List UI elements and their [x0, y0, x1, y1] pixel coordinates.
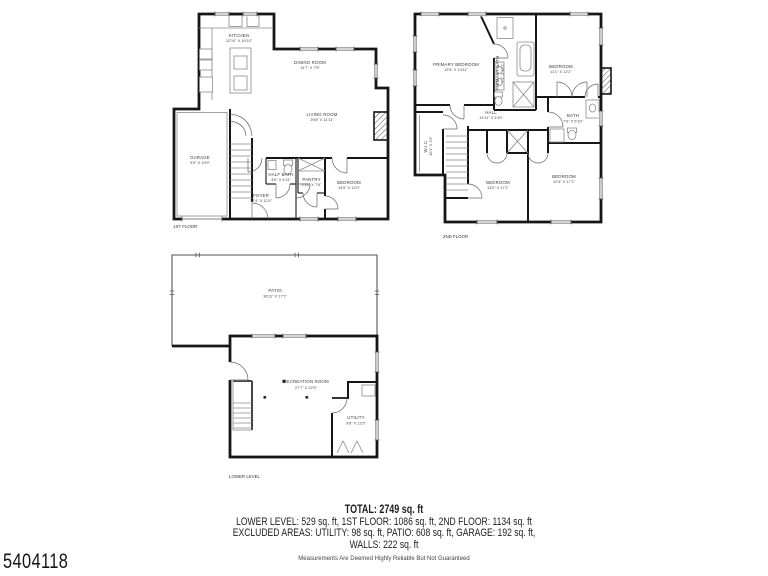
room-label-primary-bath-dims: 7'1" X 12'2" — [500, 62, 505, 82]
room-label-recreation-name: RECREATION ROOM — [283, 379, 329, 384]
room-label-patio-dims: 36'11" X 17'1" — [263, 294, 287, 299]
floor-plan-lower: PATIO 36'11" X 17'1" RECREATION ROOM 27'… — [158, 248, 408, 480]
floor-plan-second: PRIMARY BEDROOM 13'9" X 14'11" PRIMARY B… — [408, 6, 620, 246]
room-label-dining-dims: 14'7" X 7'5" — [300, 65, 320, 70]
room-label-recreation-dims: 27'7" X 22'0" — [295, 385, 318, 390]
room-label-bedroom1-dims: 14'6" X 12'0" — [338, 185, 361, 190]
room-label-wic-dims: 10'4" X 3'4" — [428, 135, 433, 155]
room-label-bedroom-tr-dims: 11'1" X 12'2" — [550, 69, 572, 74]
summary-line2: EXCLUDED AREAS: UTILITY: 98 sq. ft, PATI… — [84, 528, 683, 540]
walls-lower — [172, 336, 377, 457]
floor-label-second: 2ND FLOOR — [443, 234, 468, 239]
room-label-foyer-dims: 12'4" X 12'4" — [250, 198, 273, 203]
room-label-pantry-dims: 2'10" X 7'6" — [302, 182, 322, 187]
room-label-bedroom-br-dims: 12'4" X 17'1" — [553, 179, 576, 184]
room-label-hall-dims: 13'11" X 3'10" — [479, 115, 503, 120]
floor-plan-sheet: KITCHEN 12'10" X 16'10" DINING ROOM 14'7… — [0, 0, 768, 576]
room-label-patio-name: PATIO — [268, 288, 282, 293]
disclaimer-text: Measurements Are Deemed Highly Reliable … — [0, 556, 768, 562]
room-label-living-dims: 29'8" X 11'11" — [310, 117, 334, 122]
floor-label-lower: LOWER LEVEL — [229, 474, 261, 479]
room-label-kitchen-dims: 12'10" X 16'10" — [226, 38, 253, 43]
summary-line3: WALLS: 222 sq. ft — [84, 540, 683, 552]
floor-label-first: 1ST FLOOR — [173, 224, 197, 229]
room-label-garage-dims: 9'9" X 19'9" — [190, 160, 210, 165]
area-summary: TOTAL: 2749 sq. ft LOWER LEVEL: 529 sq. … — [84, 505, 683, 551]
room-label-utility-dims: 9'8" X 12'3" — [346, 421, 366, 426]
mls-number: 5404118 — [3, 550, 68, 574]
room-label-utility-name: UTILITY — [347, 415, 364, 420]
room-label-bath-dims: 7'9" X 5'10" — [563, 119, 583, 124]
room-label-bedroom-bl-dims: 13'0" X 17'1" — [487, 185, 510, 190]
room-label-bath-name: BATH — [567, 113, 579, 118]
floor-plan-first: KITCHEN 12'10" X 16'10" DINING ROOM 14'7… — [168, 6, 408, 232]
room-label-half-bath-dims: 4'6" X 4'11" — [271, 177, 291, 182]
summary-total: TOTAL: 2749 sq. ft — [84, 505, 683, 517]
fireplace-hatch — [374, 112, 388, 140]
patio-outline — [170, 253, 379, 346]
room-label-primary-bedroom-dims: 13'9" X 14'11" — [444, 67, 468, 72]
